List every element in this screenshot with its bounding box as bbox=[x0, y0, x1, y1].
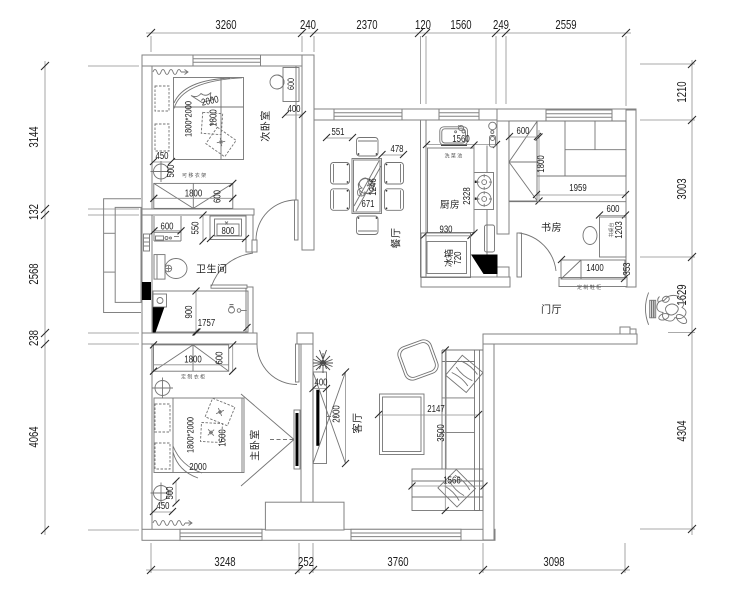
svg-text:客厅: 客厅 bbox=[351, 413, 364, 434]
svg-text:671: 671 bbox=[362, 199, 375, 210]
svg-text:930: 930 bbox=[440, 225, 453, 236]
svg-text:900: 900 bbox=[184, 305, 195, 318]
svg-text:1246: 1246 bbox=[368, 178, 379, 196]
svg-text:次卧室: 次卧室 bbox=[259, 110, 272, 142]
svg-text:洗 菜 池: 洗 菜 池 bbox=[445, 153, 463, 160]
svg-text:定 制 衣 柜: 定 制 衣 柜 bbox=[181, 374, 205, 381]
svg-text:500: 500 bbox=[165, 486, 176, 499]
svg-text:2370: 2370 bbox=[356, 17, 377, 32]
svg-text:252: 252 bbox=[298, 554, 314, 569]
svg-text:门厅: 门厅 bbox=[541, 303, 562, 316]
svg-text:1800*2000: 1800*2000 bbox=[186, 417, 196, 453]
svg-text:3098: 3098 bbox=[543, 554, 564, 569]
svg-text:353: 353 bbox=[622, 262, 633, 275]
svg-text:450: 450 bbox=[157, 501, 170, 512]
svg-text:3500: 3500 bbox=[436, 424, 447, 442]
svg-text:4064: 4064 bbox=[26, 426, 41, 447]
svg-text:3144: 3144 bbox=[26, 126, 41, 147]
svg-text:2147: 2147 bbox=[427, 404, 444, 415]
svg-text:书房: 书房 bbox=[541, 221, 562, 234]
svg-text:120: 120 bbox=[415, 17, 431, 32]
svg-text:2000: 2000 bbox=[332, 405, 343, 423]
svg-text:400: 400 bbox=[288, 104, 301, 115]
svg-text:600: 600 bbox=[286, 78, 296, 90]
svg-text:1800*2000: 1800*2000 bbox=[184, 101, 194, 137]
svg-text:定 制 鞋 柜: 定 制 鞋 柜 bbox=[577, 284, 601, 291]
svg-text:800: 800 bbox=[222, 226, 235, 237]
svg-text:1800: 1800 bbox=[536, 155, 547, 173]
svg-text:551: 551 bbox=[332, 127, 345, 138]
svg-text:1203: 1203 bbox=[614, 221, 625, 239]
svg-text:240: 240 bbox=[300, 17, 316, 32]
svg-text:500: 500 bbox=[166, 164, 177, 177]
svg-text:600: 600 bbox=[213, 190, 224, 203]
svg-text:卫生间: 卫生间 bbox=[196, 263, 228, 276]
svg-text:2000: 2000 bbox=[189, 462, 207, 473]
svg-text:1566: 1566 bbox=[443, 476, 461, 487]
svg-text:可 移 衣 架: 可 移 衣 架 bbox=[182, 172, 206, 179]
svg-text:249: 249 bbox=[493, 17, 509, 32]
svg-text:450: 450 bbox=[156, 151, 169, 162]
svg-text:1560: 1560 bbox=[450, 17, 471, 32]
svg-text:1210: 1210 bbox=[674, 81, 689, 102]
svg-text:2328: 2328 bbox=[462, 187, 473, 205]
svg-text:400: 400 bbox=[315, 378, 328, 389]
svg-text:600: 600 bbox=[517, 126, 530, 137]
svg-text:3760: 3760 bbox=[387, 554, 408, 569]
svg-text:1800: 1800 bbox=[185, 189, 203, 200]
svg-text:1800: 1800 bbox=[209, 109, 220, 127]
svg-text:1757: 1757 bbox=[198, 318, 215, 329]
svg-text:4304: 4304 bbox=[674, 420, 689, 441]
svg-text:600: 600 bbox=[161, 222, 174, 233]
svg-text:3260: 3260 bbox=[215, 17, 236, 32]
svg-text:3003: 3003 bbox=[674, 178, 689, 199]
svg-text:1400: 1400 bbox=[586, 263, 604, 274]
svg-text:2568: 2568 bbox=[26, 263, 41, 284]
svg-text:厨房: 厨房 bbox=[440, 199, 460, 211]
svg-text:餐厅: 餐厅 bbox=[390, 228, 403, 249]
svg-text:1800: 1800 bbox=[184, 355, 202, 366]
svg-text:600: 600 bbox=[215, 351, 226, 364]
svg-text:1560: 1560 bbox=[452, 134, 470, 145]
svg-text:478: 478 bbox=[391, 144, 404, 155]
svg-text:3248: 3248 bbox=[214, 554, 235, 569]
svg-text:600: 600 bbox=[607, 204, 620, 215]
svg-text:1600: 1600 bbox=[218, 429, 229, 447]
svg-text:主卧室: 主卧室 bbox=[249, 429, 262, 461]
svg-text:720: 720 bbox=[453, 251, 464, 264]
svg-text:1959: 1959 bbox=[569, 183, 586, 194]
svg-text:238: 238 bbox=[26, 330, 41, 346]
svg-text:2559: 2559 bbox=[555, 17, 576, 32]
svg-text:132: 132 bbox=[26, 204, 41, 220]
svg-text:1629: 1629 bbox=[674, 284, 689, 305]
svg-text:550: 550 bbox=[191, 221, 202, 234]
